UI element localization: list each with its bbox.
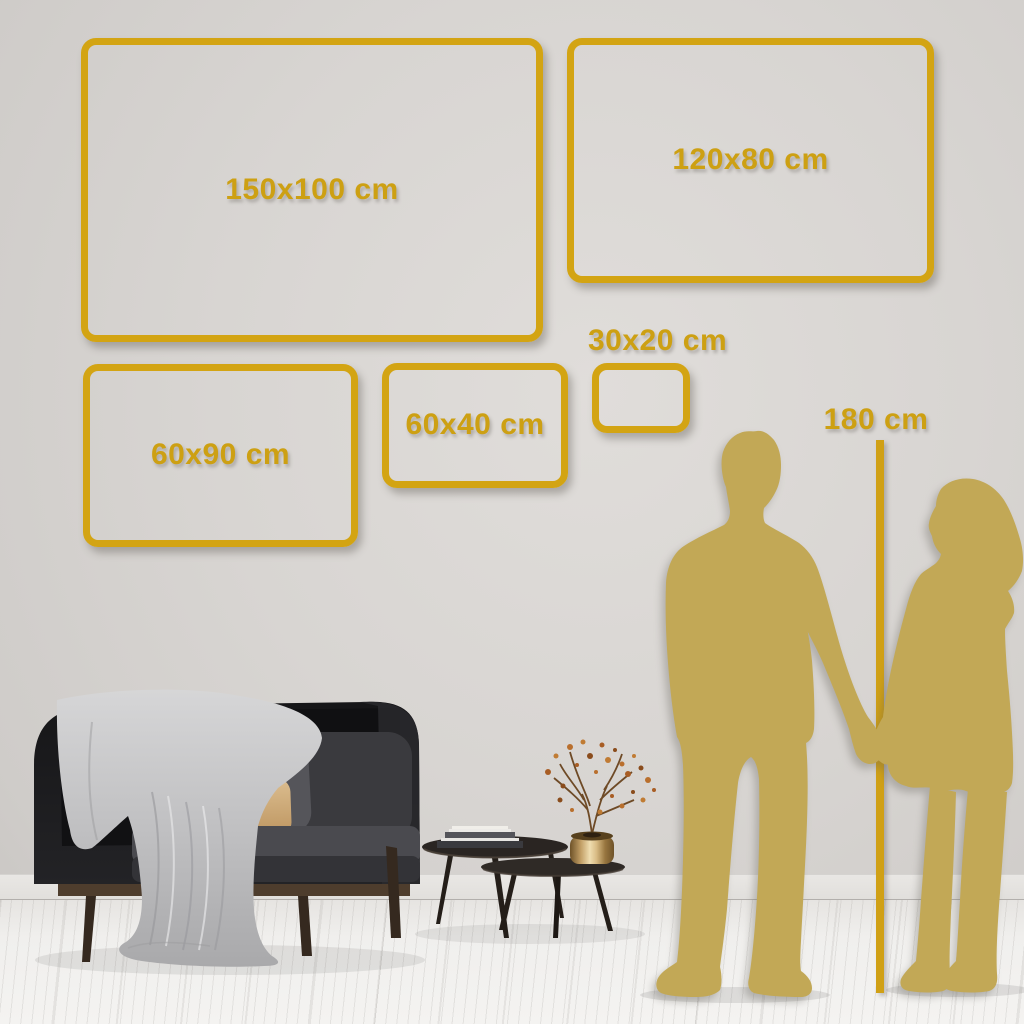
man-silhouette bbox=[656, 431, 883, 997]
height-reference-label: 180 cm bbox=[776, 402, 976, 438]
size-label-60x90: 60x90 cm bbox=[83, 437, 358, 473]
size-label-150x100: 150x100 cm bbox=[81, 172, 543, 208]
size-label-60x40: 60x40 cm bbox=[382, 407, 568, 443]
woman-front-leg bbox=[900, 786, 956, 993]
size-label-30x20: 30x20 cm bbox=[588, 323, 788, 359]
size-guide-scene: 150x100 cm 120x80 cm 60x90 cm 60x40 cm 3… bbox=[0, 0, 1024, 1024]
woman-silhouette bbox=[873, 478, 1023, 792]
size-label-120x80: 120x80 cm bbox=[567, 142, 934, 178]
